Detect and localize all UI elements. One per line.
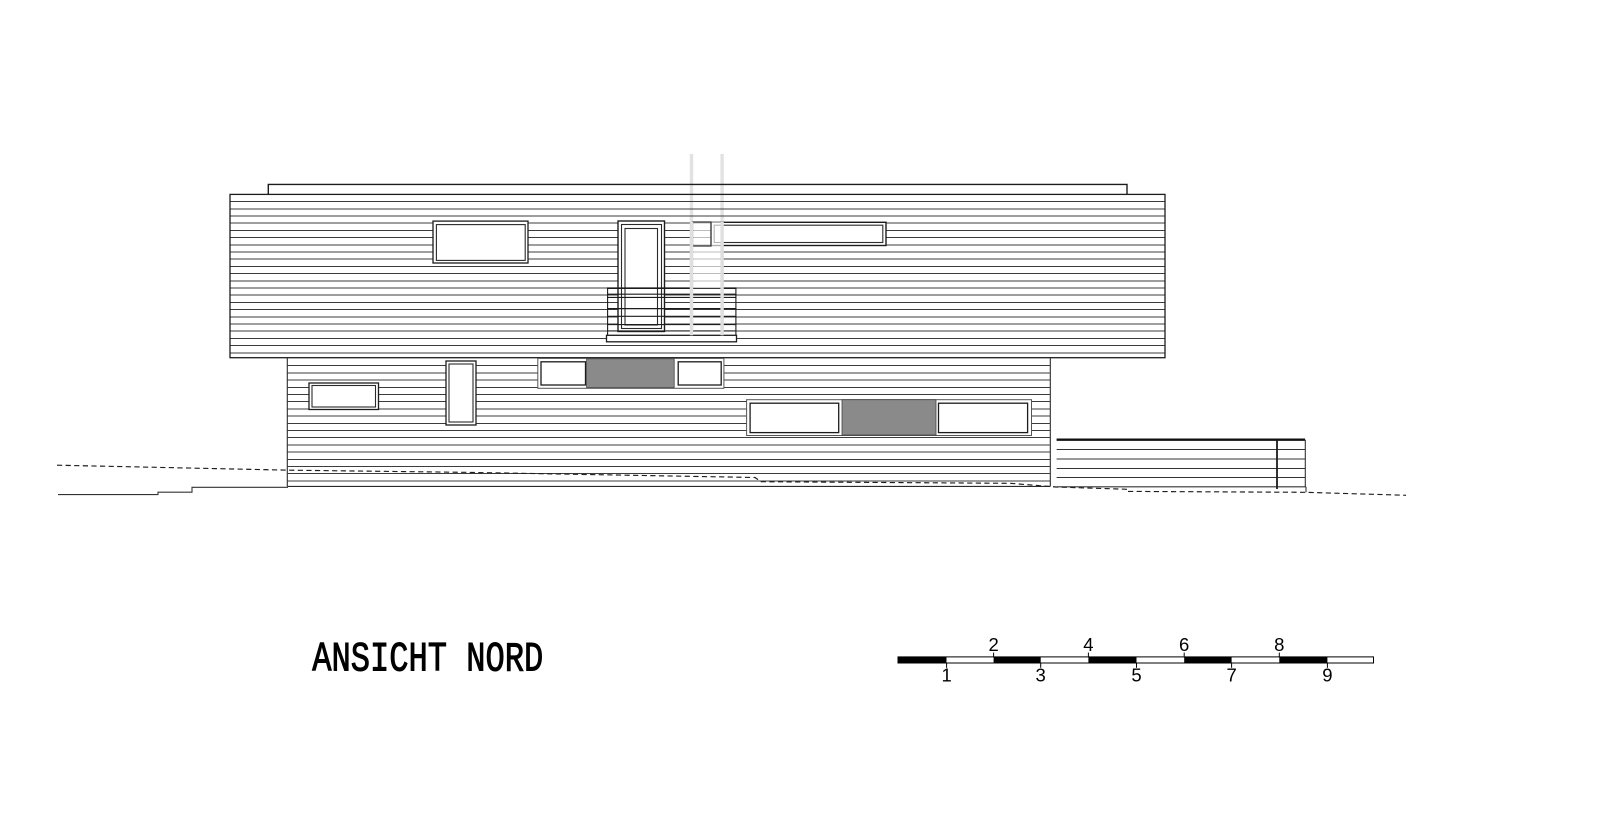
svg-text:ANSICHT NORD: ANSICHT NORD — [312, 635, 543, 683]
svg-text:1: 1 — [941, 665, 951, 686]
svg-text:9: 9 — [1322, 665, 1332, 686]
svg-text:5: 5 — [1131, 665, 1141, 686]
svg-text:3: 3 — [1036, 665, 1046, 686]
svg-text:4: 4 — [1083, 634, 1093, 655]
svg-text:2: 2 — [988, 634, 998, 655]
svg-text:6: 6 — [1179, 634, 1189, 655]
svg-text:8: 8 — [1274, 634, 1284, 655]
svg-text:7: 7 — [1226, 665, 1236, 686]
